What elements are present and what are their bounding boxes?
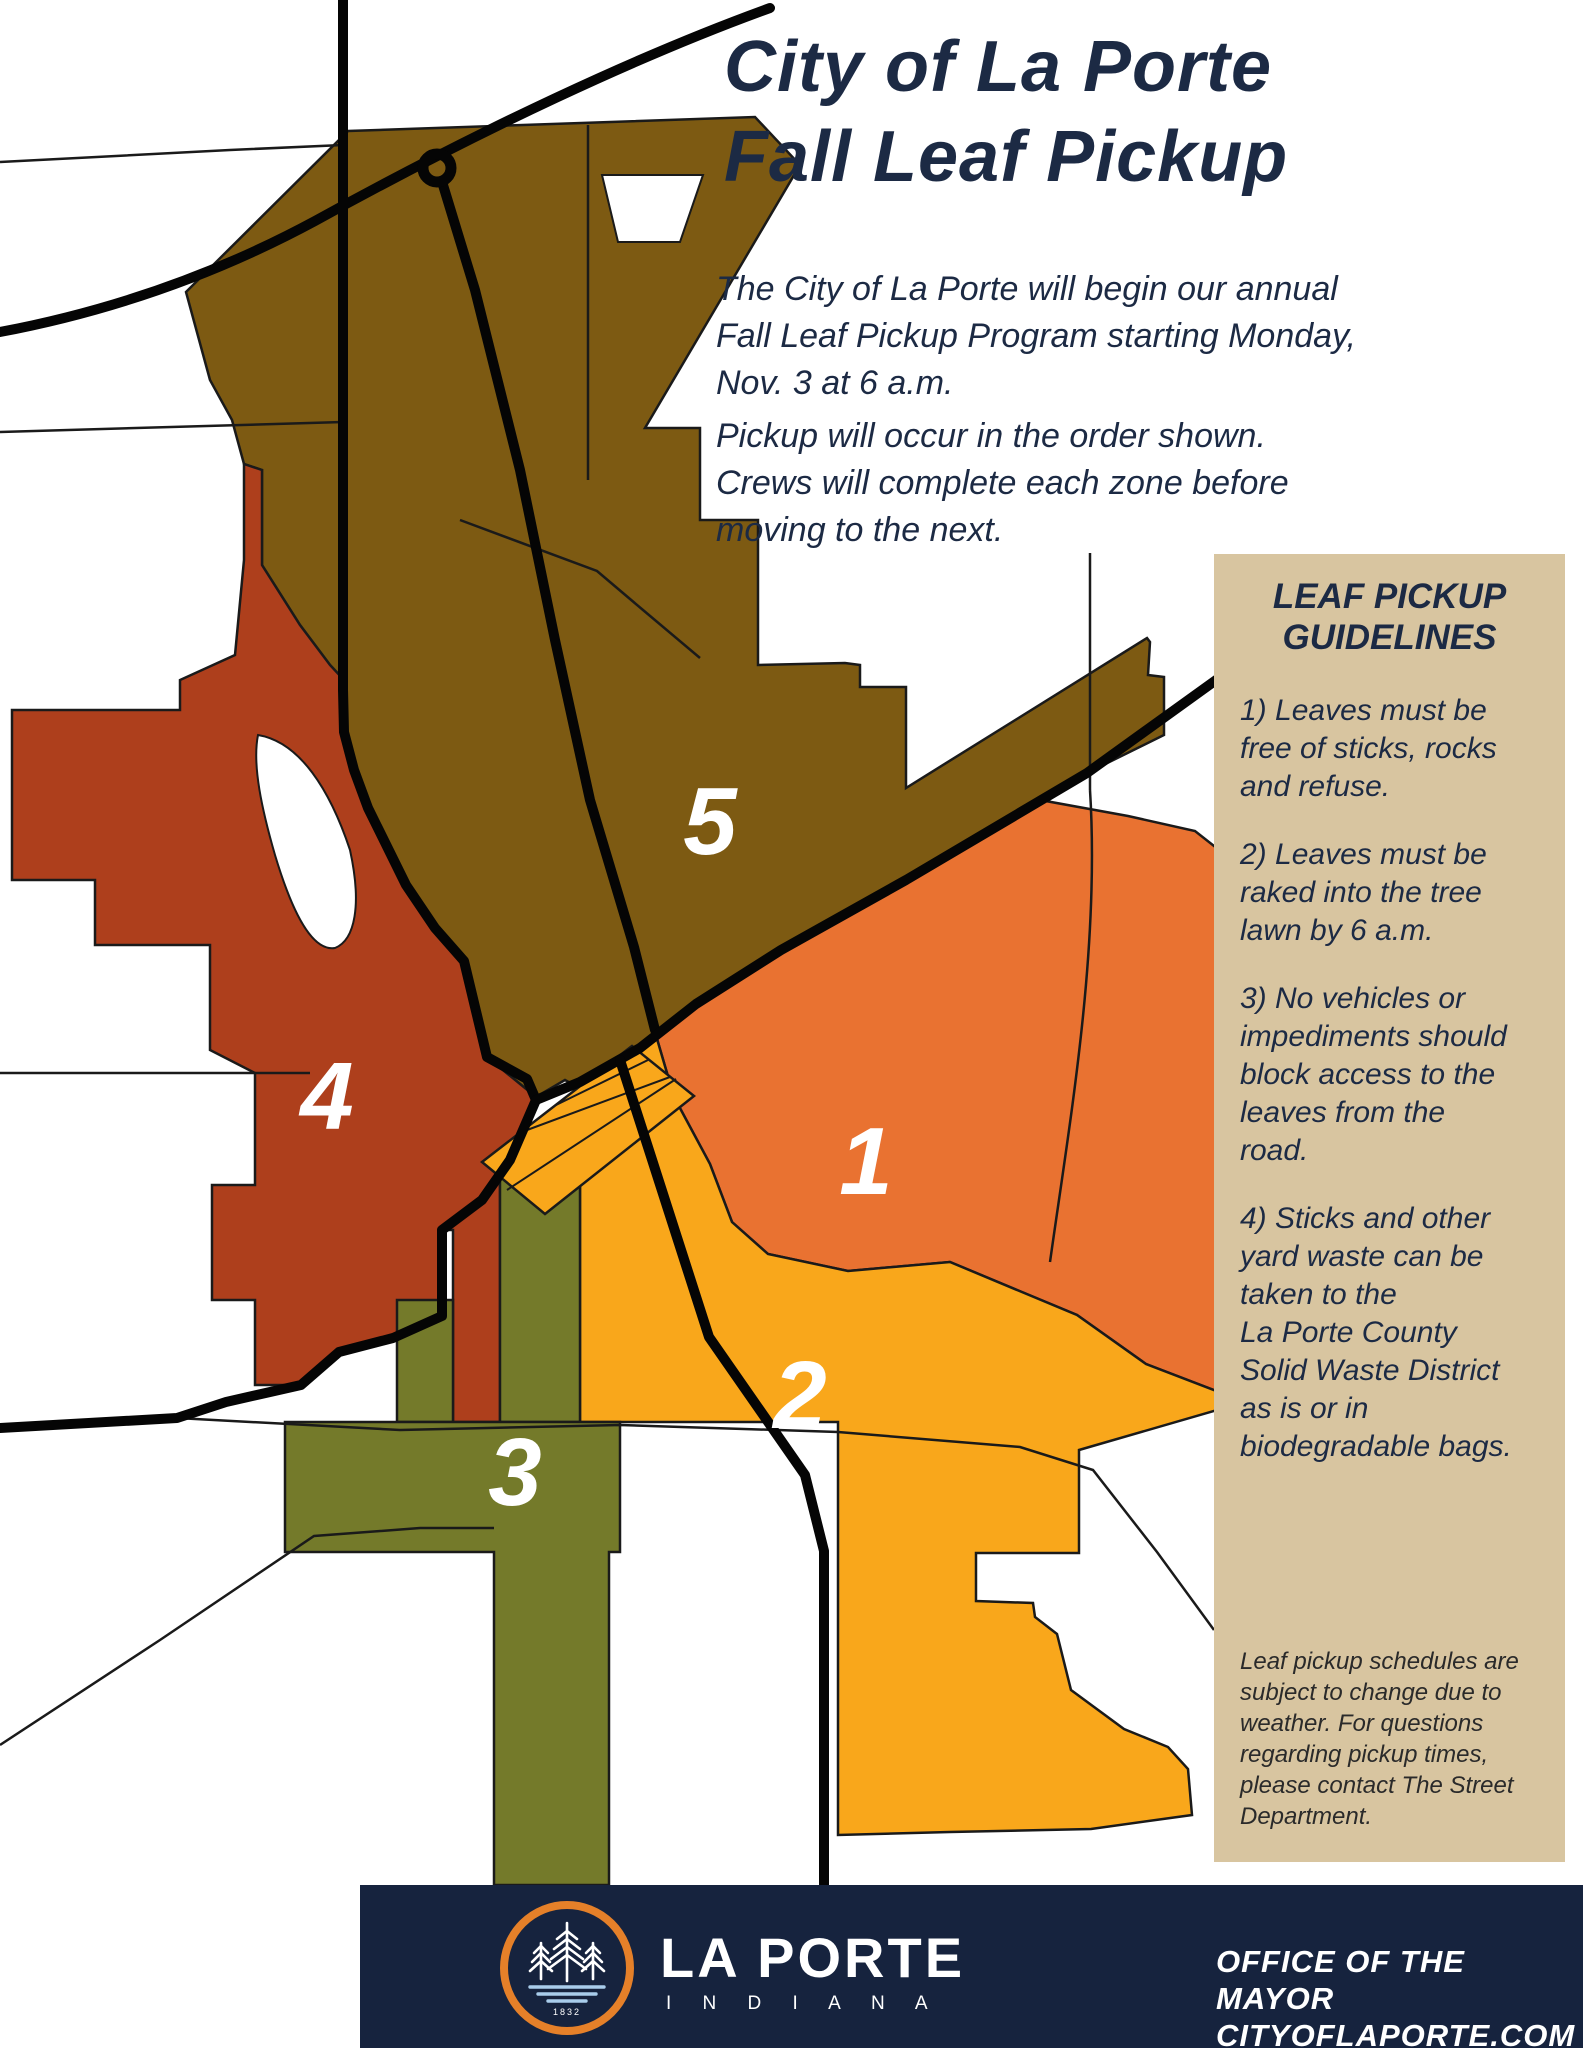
guidelines-panel: LEAF PICKUP GUIDELINES 1) Leaves must be… — [1214, 554, 1565, 1862]
zone-2-label: 2 — [771, 1342, 826, 1449]
footer-bar: 1832 LA PORTE I N D I A N A OFFICE OF TH… — [360, 1885, 1583, 2048]
intro-paragraph-1: The City of La Porte will begin our annu… — [716, 266, 1396, 407]
zone-5-label: 5 — [683, 768, 738, 875]
laporte-city-logo: 1832 — [500, 1901, 634, 2035]
footer-office-line2: CITYOFLAPORTE.COM — [1216, 2017, 1583, 2048]
guideline-item-2: 2) Leaves must be raked into the tree la… — [1240, 836, 1539, 950]
zone-3-area — [285, 1422, 620, 1885]
guidelines-list: 1) Leaves must be free of sticks, rocks … — [1240, 692, 1539, 1466]
guidelines-heading: LEAF PICKUP GUIDELINES — [1240, 576, 1539, 658]
footer-brand: LA PORTE — [660, 1925, 965, 1990]
logo-year: 1832 — [553, 2007, 581, 2017]
pine-trees-lake-icon: 1832 — [508, 1909, 626, 2027]
zone-4-label: 4 — [298, 1043, 353, 1150]
guideline-item-4: 4) Sticks and other yard waste can be ta… — [1240, 1200, 1539, 1466]
intro-paragraph-2: Pickup will occur in the order shown. Cr… — [716, 413, 1396, 554]
flyer-page: 1 2 3 4 5 City of La Porte Fall Leaf Pic… — [0, 0, 1583, 2048]
page-title: City of La Porte Fall Leaf Pickup — [724, 22, 1564, 202]
footer-brand-sub: I N D I A N A — [666, 1993, 941, 2015]
zone-1-label: 1 — [839, 1108, 892, 1215]
footer-office-text: OFFICE OF THE MAYOR CITYOFLAPORTE.COM — [1216, 1943, 1583, 2048]
guideline-item-3: 3) No vehicles or impediments should blo… — [1240, 980, 1539, 1170]
footer-office-line1: OFFICE OF THE MAYOR — [1216, 1943, 1583, 2017]
guideline-item-1: 1) Leaves must be free of sticks, rocks … — [1240, 692, 1539, 806]
zone-3-label: 3 — [488, 1419, 541, 1526]
guidelines-footnote: Leaf pickup schedules are subject to cha… — [1240, 1646, 1540, 1832]
